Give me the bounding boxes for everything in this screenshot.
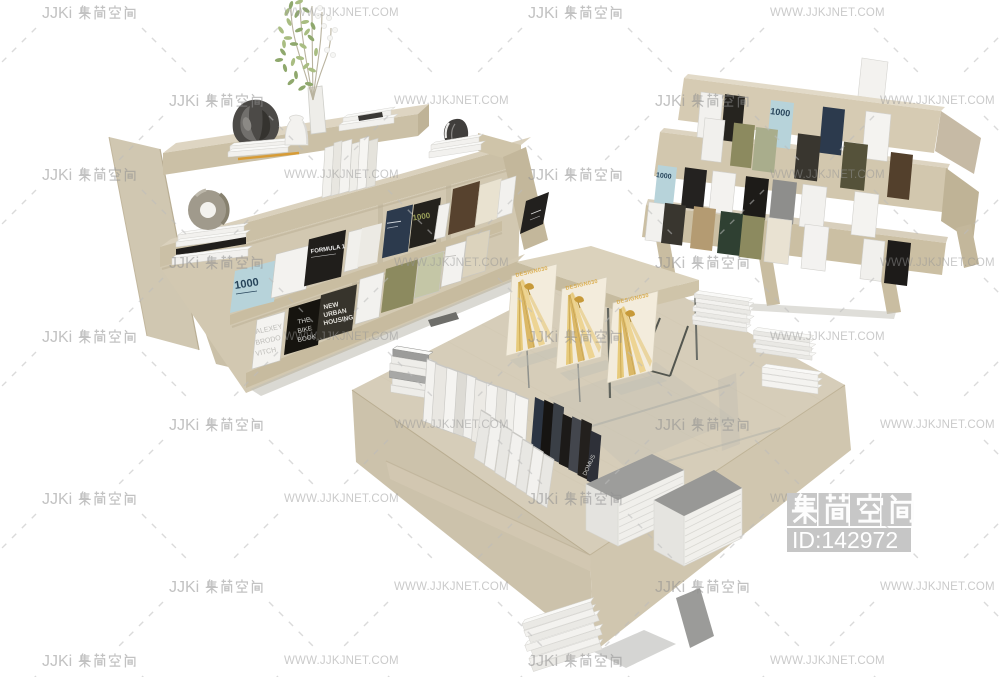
svg-text:WWW.JJKJNET.COM: WWW.JJKJNET.COM [880,257,995,269]
svg-text:WWW.JJKJNET.COM: WWW.JJKJNET.COM [284,7,399,19]
svg-text:JJKi: JJKi [655,579,685,596]
svg-text:JJKi: JJKi [528,5,558,22]
svg-text:WWW.JJKJNET.COM: WWW.JJKJNET.COM [394,257,509,269]
svg-text:WWW.JJKJNET.COM: WWW.JJKJNET.COM [394,581,509,593]
svg-text:JJKi: JJKi [528,491,558,508]
svg-text:WWW.JJKJNET.COM: WWW.JJKJNET.COM [284,493,399,505]
svg-text:WWW.JJKJNET.COM: WWW.JJKJNET.COM [770,7,885,19]
svg-text:WWW.JJKJNET.COM: WWW.JJKJNET.COM [880,95,995,107]
svg-text:JJKi: JJKi [169,579,199,596]
svg-text:JJKi: JJKi [169,417,199,434]
svg-text:WWW.JJKJNET.COM: WWW.JJKJNET.COM [284,331,399,343]
svg-text:WWW.JJKJNET.COM: WWW.JJKJNET.COM [284,655,399,667]
svg-text:JJKi: JJKi [42,329,72,346]
svg-text:JJKi: JJKi [655,93,685,110]
svg-text:JJKi: JJKi [42,5,72,22]
svg-text:WWW.JJKJNET.COM: WWW.JJKJNET.COM [770,169,885,181]
svg-text:JJKi: JJKi [169,255,199,272]
svg-text:JJKi: JJKi [169,93,199,110]
svg-text:JJKi: JJKi [528,653,558,670]
svg-text:WWW.JJKJNET.COM: WWW.JJKJNET.COM [880,419,995,431]
svg-text:WWW.JJKJNET.COM: WWW.JJKJNET.COM [284,169,399,181]
svg-text:JJKi: JJKi [42,491,72,508]
svg-text:JJKi: JJKi [42,167,72,184]
svg-text:JJKi: JJKi [528,167,558,184]
svg-text:JJKi: JJKi [528,329,558,346]
svg-text:WWW.JJKJNET.COM: WWW.JJKJNET.COM [770,655,885,667]
svg-text:WWW.JJKJNET.COM: WWW.JJKJNET.COM [394,419,509,431]
svg-text:WWW.JJKJNET.COM: WWW.JJKJNET.COM [880,581,995,593]
svg-text:JJKi: JJKi [655,255,685,272]
svg-text:ID:142972: ID:142972 [792,527,898,553]
svg-text:WWW.JJKJNET.COM: WWW.JJKJNET.COM [770,331,885,343]
svg-text:WWW.JJKJNET.COM: WWW.JJKJNET.COM [394,95,509,107]
svg-text:JJKi: JJKi [42,653,72,670]
svg-text:JJKi: JJKi [655,417,685,434]
